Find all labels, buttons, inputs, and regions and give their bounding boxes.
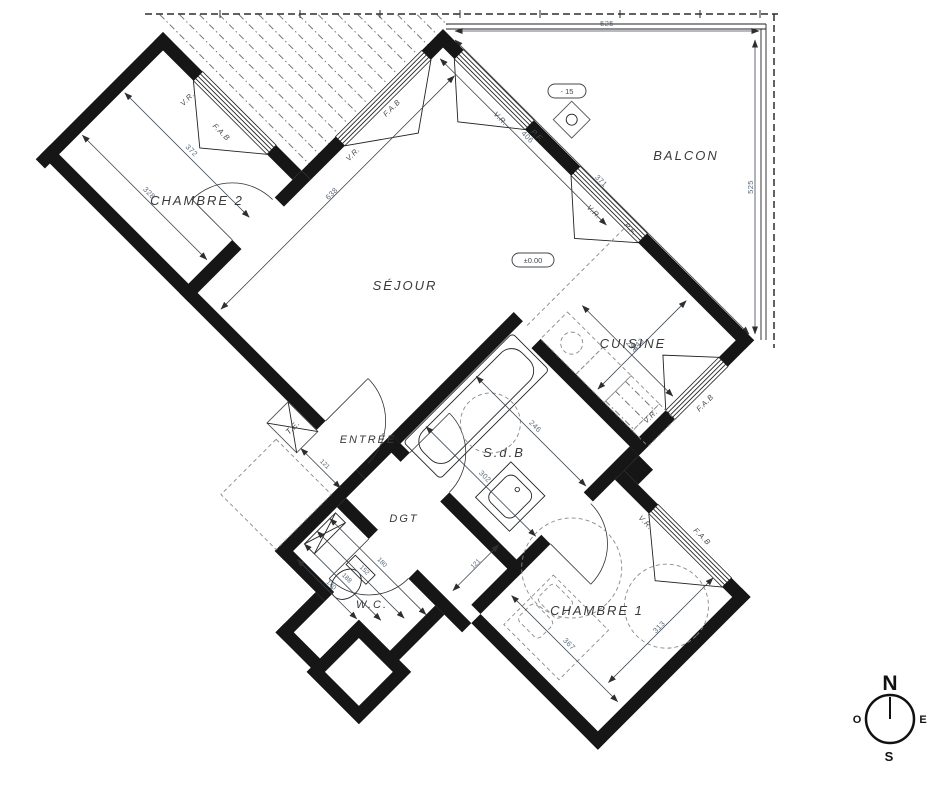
dim-ch1-b: 313 (651, 619, 667, 635)
window-label-vr-facade1: V.R. (492, 110, 510, 128)
dim-sejour-long: 638 (324, 186, 340, 202)
room-label-cuisine: CUISINE (600, 336, 667, 351)
door-sdb (410, 413, 489, 492)
room-label-wc: W.C. (356, 599, 388, 611)
window-label-vr-facade2: V.R. (585, 203, 603, 221)
balcony-dimensions: 525 371 525 (455, 19, 759, 334)
window-label-vr-ch2: V.R. (178, 90, 196, 108)
compass-west: O (853, 714, 862, 726)
room-label-balcon: BALCON (653, 148, 718, 163)
room-label-entree: ENTRÉE (340, 433, 397, 446)
level-floor: ±0.00 (524, 256, 543, 265)
window-chambre1 (618, 504, 731, 617)
compass-rose: N O E S (853, 672, 927, 764)
dimension-lines: 372 328 638 406 243 296 246 302 121 121 … (0, 0, 858, 791)
compass-east: E (919, 714, 926, 726)
dim-wc-a: 180 (376, 556, 389, 569)
floor-plan-svg: 525 371 525 (0, 0, 929, 800)
window-label-vr-sejour: V.R. (344, 145, 362, 163)
dim-wc-c: 188 (340, 572, 353, 585)
sejour-cuisine-limit (527, 229, 624, 326)
dim-sdb-a: 246 (527, 418, 543, 434)
compass-north: N (882, 672, 897, 695)
dim-ch2-a: 372 (184, 142, 200, 158)
dim-entree: 121 (318, 458, 331, 471)
compass-south: S (885, 749, 894, 764)
door-chambre1 (550, 504, 631, 585)
balcony-light-fixture (553, 101, 590, 138)
room-label-chambre1: CHAMBRE 1 (550, 603, 644, 618)
level-balcony: - 15 (561, 87, 574, 96)
dim-balcony-right: 525 (746, 180, 755, 194)
walls (0, 0, 881, 800)
window-label-fab-ch2: F.A.B (211, 122, 232, 143)
floor-plan-page: 525 371 525 (0, 0, 929, 800)
room-label-dgt: DGT (389, 513, 418, 525)
room-label-sejour: SÉJOUR (373, 278, 438, 293)
dim-ch1-a: 367 (561, 636, 577, 652)
window-facade-2 (541, 166, 647, 272)
plan-rotated-group: T.E. 372 328 638 406 243 296 246 302 121… (0, 0, 909, 800)
window-facade-1 (425, 50, 535, 160)
dim-balcony-top: 525 (600, 19, 614, 28)
room-label-sdb: S.d.B (483, 445, 525, 460)
room-label-chambre2: CHAMBRE 2 (150, 193, 244, 208)
dim-dgt: 121 (470, 558, 483, 571)
pillow-2 (517, 602, 555, 640)
